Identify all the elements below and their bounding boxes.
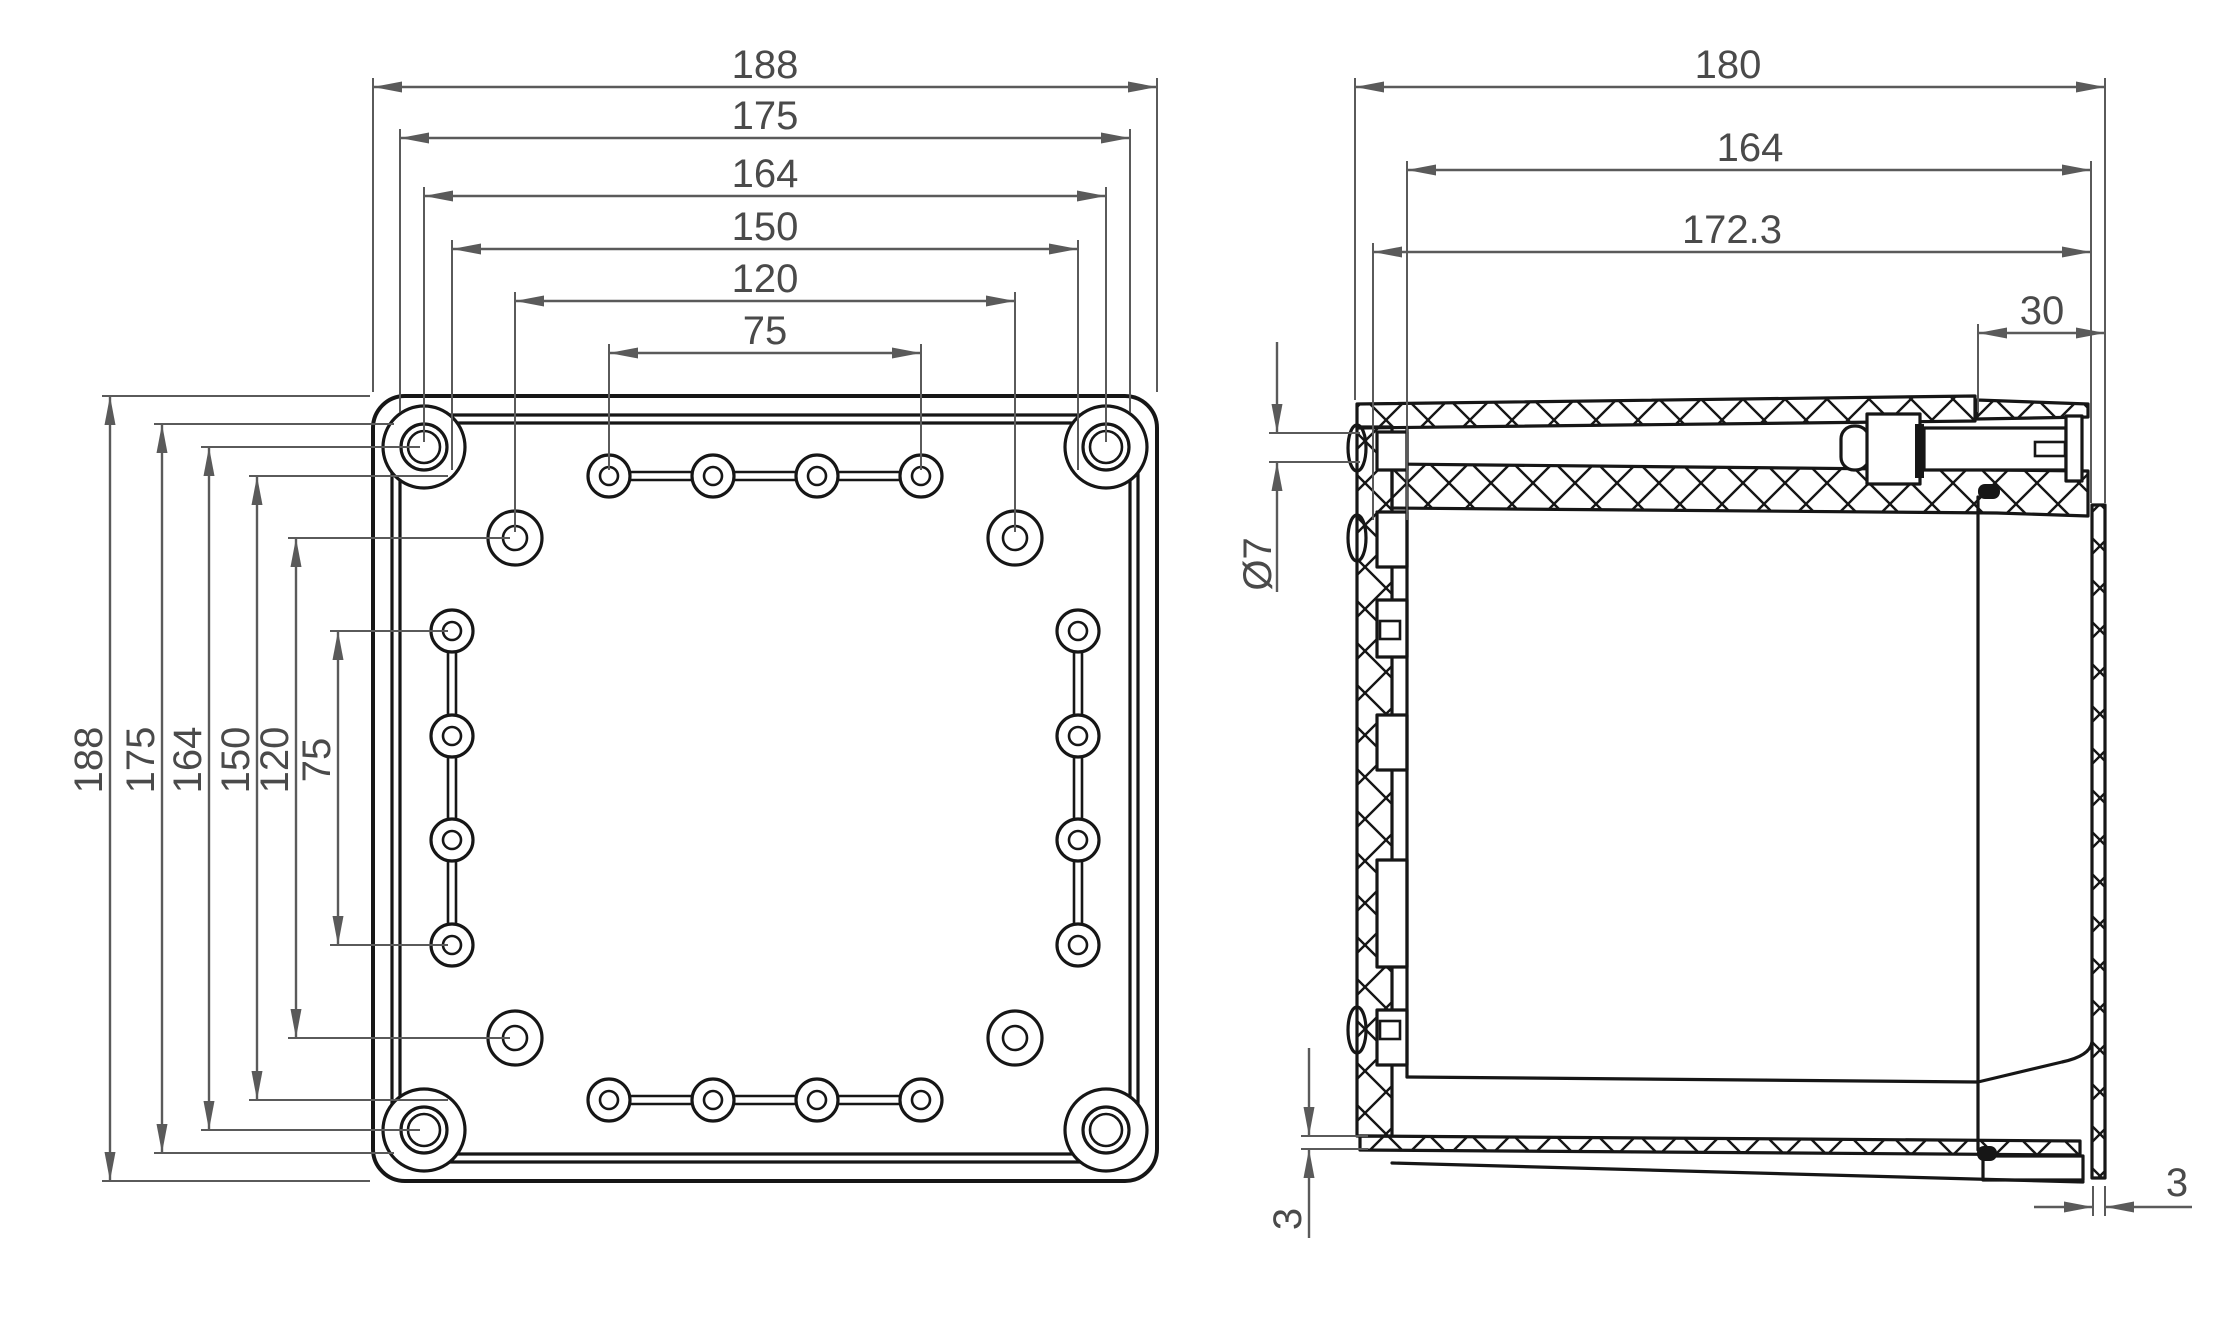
dim-label: 150 [214, 727, 258, 794]
dim-label: 30 [2020, 289, 2065, 333]
dim-label: 120 [732, 257, 799, 301]
dim-label: 164 [732, 152, 799, 196]
dim-label: 188 [67, 727, 111, 794]
bottom-lip-line [1392, 1163, 2083, 1182]
gasket-section-top [1978, 484, 2000, 499]
dim-side-top-30: 30 [1978, 289, 2105, 412]
latch-end-plate [2066, 416, 2082, 481]
bottom-foot [1983, 1156, 2083, 1180]
dim-label: 175 [732, 94, 799, 138]
dim-label: 3 [2166, 1161, 2188, 1205]
dim-label: 175 [119, 727, 163, 794]
dim-label: 3 [1266, 1208, 1310, 1230]
right-wall-section [2092, 505, 2105, 1178]
dim-label: Ø7 [1236, 537, 1280, 590]
dim-side-bottom-wall-3: 3 [1266, 1048, 1368, 1238]
interior-bottom-line [1407, 1042, 2092, 1082]
dim-side-hole-diameter: Ø7 [1236, 342, 1360, 592]
dim-label: 75 [743, 309, 788, 353]
diagonal-holes [488, 511, 1042, 1065]
latch-block [1867, 414, 1920, 484]
dim-front-left-120: 120 [253, 538, 510, 1038]
dim-front-top-175: 175 [400, 94, 1130, 412]
latch-pin [1841, 426, 1869, 470]
dim-label: 120 [253, 727, 297, 794]
dim-label: 164 [166, 727, 210, 794]
enclosure-outline [373, 396, 1157, 1181]
gasket-section-bottom [1977, 1146, 1997, 1161]
screw-boss [1065, 1089, 1147, 1171]
dim-label: 164 [1717, 126, 1784, 170]
dim-label: 75 [295, 738, 339, 783]
dim-label: 180 [1695, 43, 1762, 87]
bottom-wall-section [1360, 1136, 2080, 1155]
dim-label: 172.3 [1682, 208, 1782, 252]
dim-label: 150 [732, 205, 799, 249]
dim-front-left-150: 150 [214, 476, 448, 1100]
drawing-sheet: 188 175 164 150 120 75 188 175 164 [0, 0, 2240, 1343]
side-view [1348, 396, 2105, 1182]
dim-label: 188 [732, 43, 799, 87]
latch-notch [2035, 442, 2065, 456]
latch-assembly [1841, 414, 2082, 1161]
dim-front-top-75: 75 [609, 309, 921, 470]
technical-drawing: 188 175 164 150 120 75 188 175 164 [0, 0, 2240, 1343]
front-view [373, 396, 1157, 1181]
hole-rails [448, 472, 1082, 1104]
